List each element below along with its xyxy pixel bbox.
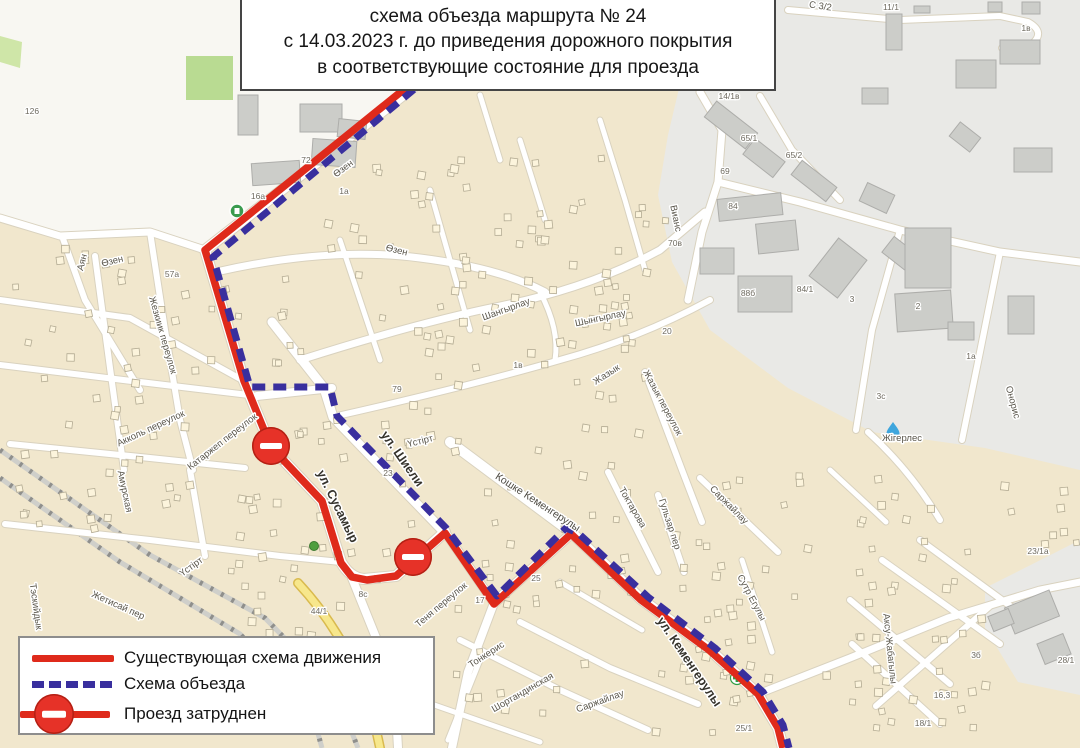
title-line-2: с 14.03.2023 г. до приведения дорожного … [246, 29, 770, 54]
legend: Существующая схема движения Схема объезд… [18, 636, 435, 735]
house-number-label: 16а [251, 191, 265, 201]
house-number-label: 44/1 [311, 606, 328, 616]
no-entry-sign-icon [34, 694, 74, 734]
title-box: схема объезда маршрута № 24 с 14.03.2023… [240, 0, 776, 91]
street-label: Шангырлау [481, 296, 532, 324]
building [700, 248, 734, 274]
house-number-label: 79 [392, 384, 402, 394]
legend-row-no-entry: Проезд затруднен [20, 694, 433, 734]
existing-route-swatch [32, 655, 114, 662]
street-label: Кошке Кеменгерулы [493, 471, 582, 535]
detour-route-swatch [32, 681, 116, 688]
green-field [186, 56, 233, 100]
house-number-label: 84 [728, 201, 738, 211]
street-label: Өзен [100, 254, 124, 270]
street-label: Жетисай пер [90, 589, 147, 622]
legend-label-detour: Схема объезда [124, 674, 245, 694]
house-number-label: 3с [877, 391, 887, 401]
house-number-label: 8с [359, 589, 369, 599]
building [905, 228, 951, 288]
house-number-label: 1в [513, 360, 523, 370]
building [862, 88, 888, 104]
house-number-label: 11/1 [883, 2, 899, 12]
building [956, 60, 996, 88]
street-label: Теня переулок [413, 580, 470, 630]
house-number-label: 18/1 [915, 718, 932, 728]
house-number-label: 3 [850, 294, 855, 304]
building [238, 95, 258, 135]
building [1008, 296, 1034, 334]
house-number-label: 2 [916, 301, 921, 311]
house-number-label: 1а [339, 186, 349, 196]
legend-label-existing: Существующая схема движения [124, 648, 381, 668]
street-label: Амурская [115, 470, 135, 514]
legend-row-existing-route: Существующая схема движения [32, 648, 381, 668]
building [988, 2, 1002, 12]
building [914, 6, 930, 13]
building [1000, 40, 1040, 64]
street-label: Саржайлау [707, 484, 750, 527]
building [1014, 148, 1052, 172]
house-number-label: 23/1а [1027, 546, 1049, 556]
house-number-label: 65/2 [786, 150, 803, 160]
building [1022, 2, 1040, 14]
legend-row-detour-route: Схема объезда [32, 674, 245, 694]
house-number-label: 14/1в [718, 91, 740, 101]
building [886, 14, 902, 50]
street-label: Үстірт [406, 433, 434, 450]
street-label: Гульзар пер [656, 497, 683, 551]
house-number-label: 28/1 [1058, 655, 1075, 665]
house-number-label: 23 [383, 468, 393, 478]
house-number-label: 69 [720, 166, 730, 176]
street-label: Жігерлес [882, 433, 922, 444]
house-number-label: 126 [25, 106, 39, 116]
no-entry-swatch [20, 694, 116, 734]
detour-map-screenshot: ӨзенӨзенӨзенАянЖезкиик переулокАкколь пе… [0, 0, 1080, 748]
house-number-label: 1в [1021, 23, 1031, 33]
house-number-label: 3б [971, 650, 981, 660]
house-number-label: 88б [741, 288, 755, 298]
tree-icon [310, 542, 319, 551]
house-number-label: 20 [662, 326, 672, 336]
house-number-label: 17 [475, 595, 485, 605]
street-label: Тэскийдык [27, 583, 45, 632]
house-number-label: 65/1 [741, 133, 758, 143]
legend-label-no-entry: Проезд затруднен [124, 704, 266, 724]
street-label: Аян [75, 253, 90, 272]
house-number-label: 72 [301, 155, 311, 165]
building [895, 290, 954, 332]
title-line-3: в соответствующие состояние для проезда [246, 55, 770, 80]
house-number-label: 1а [966, 351, 976, 361]
street-label: Жазык [591, 362, 622, 388]
building [300, 104, 342, 132]
house-number-label: 70в [668, 238, 682, 248]
house-number-label: 25 [531, 573, 541, 583]
house-number-label: 16,3 [934, 690, 951, 700]
no-entry-sign [252, 427, 290, 465]
building [756, 220, 799, 254]
no-entry-sign [394, 538, 432, 576]
house-number-label: 84/1 [797, 284, 814, 294]
title-line-1: схема объезда маршрута № 24 [246, 4, 770, 29]
house-number-label: 57а [165, 269, 179, 279]
house-number-label: 25/1 [736, 723, 753, 733]
building [948, 322, 974, 340]
